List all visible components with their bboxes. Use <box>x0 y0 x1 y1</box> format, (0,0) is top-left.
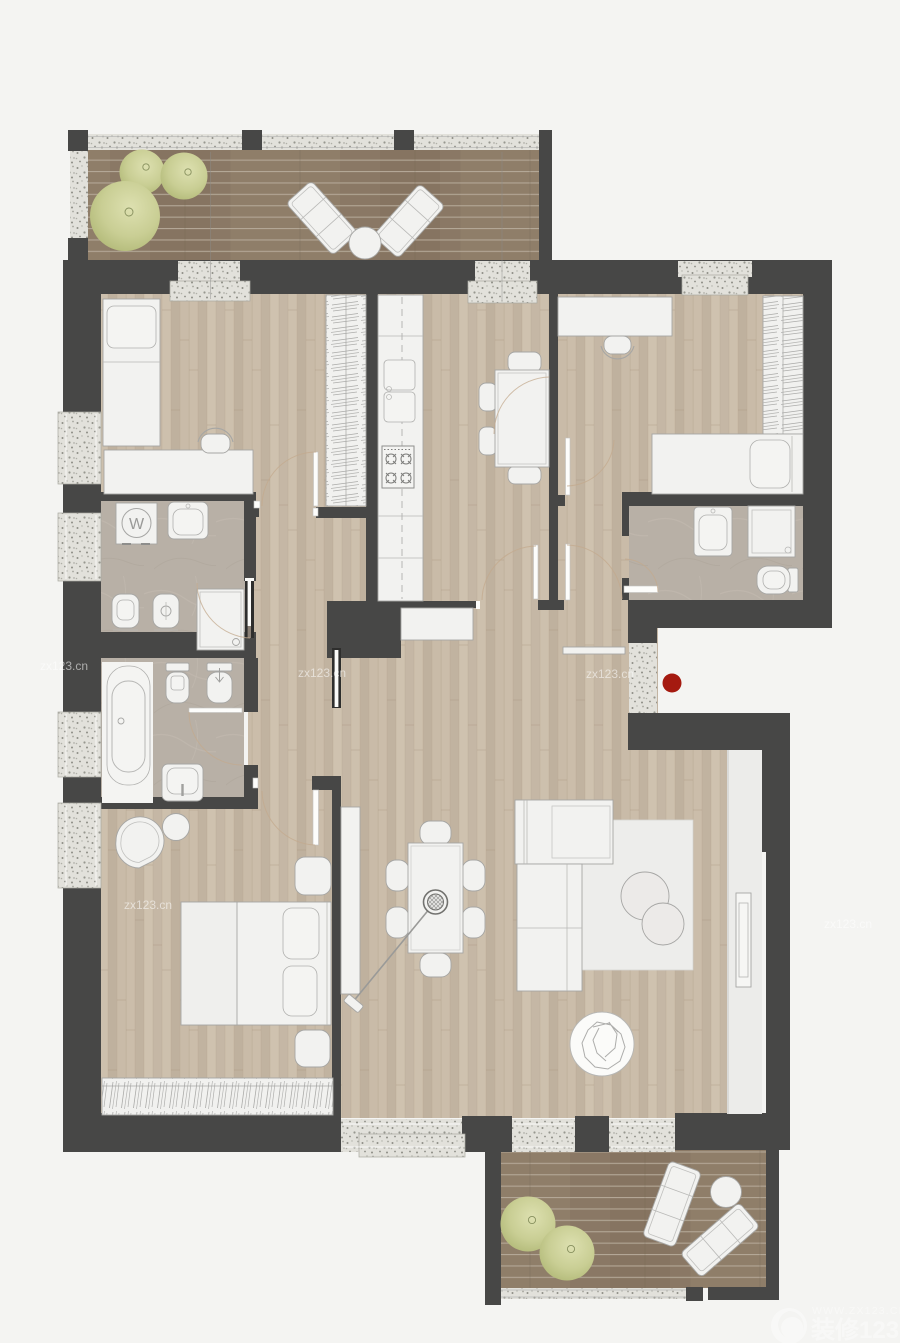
svg-text:W: W <box>129 516 145 533</box>
svg-text:装修123: 装修123 <box>811 1317 899 1343</box>
svg-text:zx123.cn: zx123.cn <box>586 667 634 681</box>
svg-text:zx123.cn: zx123.cn <box>40 659 88 673</box>
svg-text:zx123.cn: zx123.cn <box>124 898 172 912</box>
svg-text:zx123.cn: zx123.cn <box>824 917 872 931</box>
svg-text:WWW.ZX123.CN: WWW.ZX123.CN <box>812 1305 900 1317</box>
svg-text:zx123.cn: zx123.cn <box>298 666 346 680</box>
